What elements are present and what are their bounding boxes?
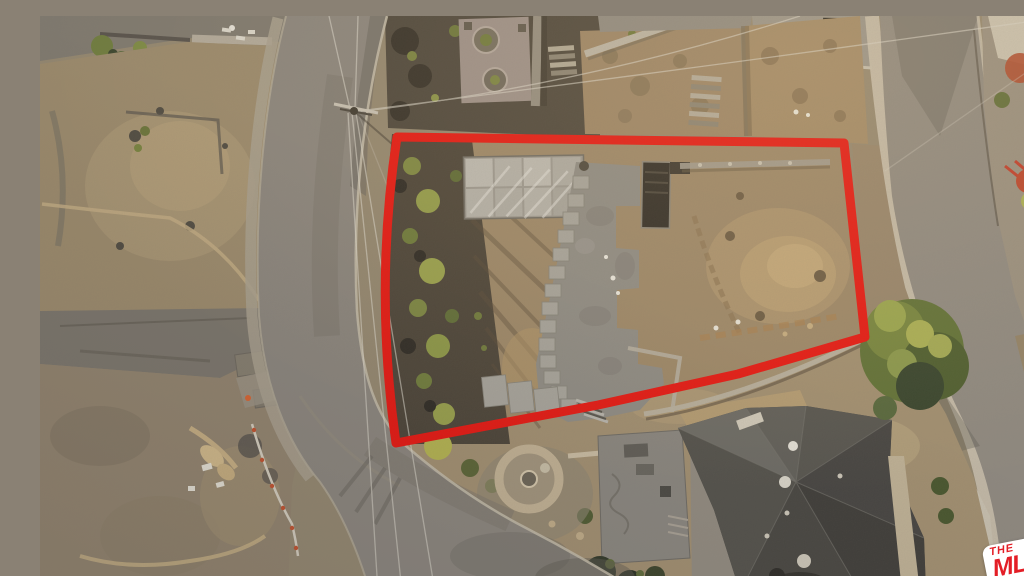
film-grain — [40, 16, 1024, 576]
photo-canvas — [40, 16, 1024, 576]
aerial-photo: THE MLS™ .COM — [40, 16, 1024, 576]
